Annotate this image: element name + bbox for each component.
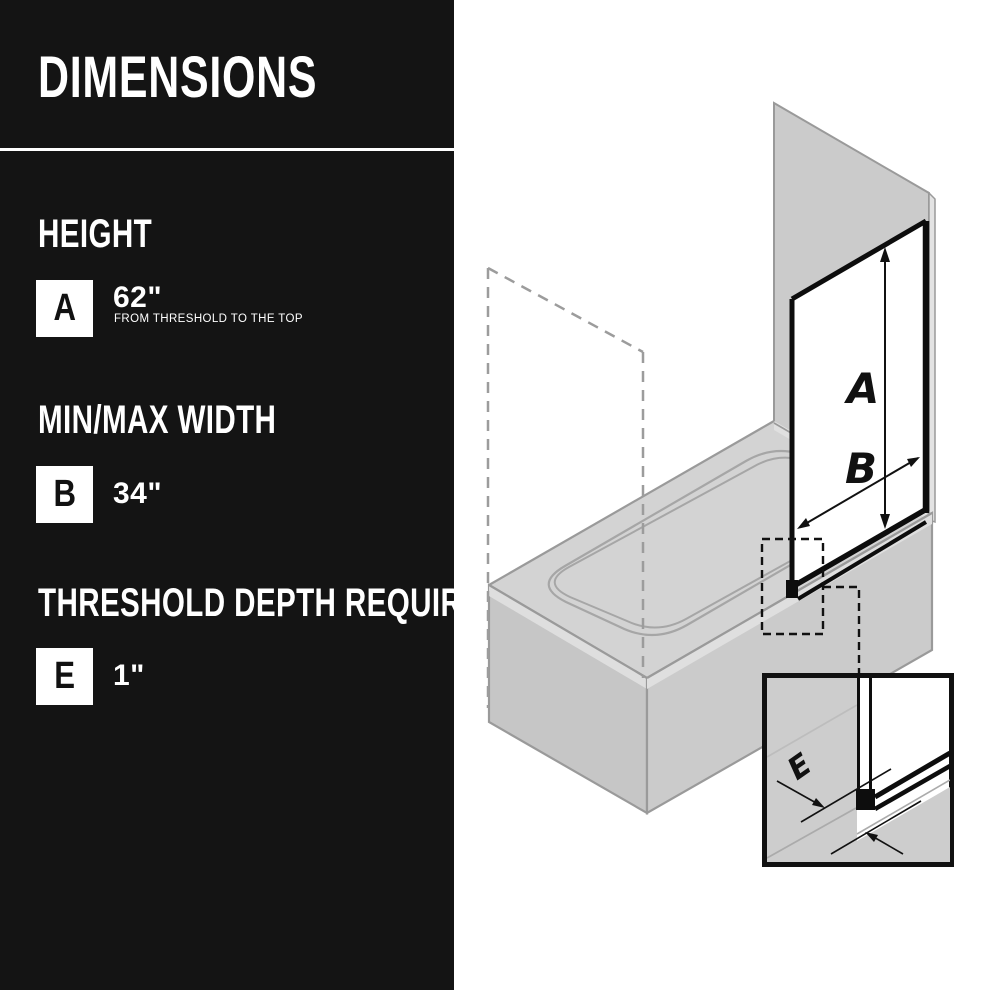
threshold-value: 1" xyxy=(113,659,145,693)
panel-foot xyxy=(786,580,798,598)
title-divider xyxy=(0,148,454,151)
inset-threshold-foot xyxy=(856,789,875,810)
height-value: 62" xyxy=(113,281,162,315)
isometric-drawing: A B xyxy=(454,0,990,990)
width-value: 34" xyxy=(113,477,162,511)
dimensions-sidebar: DIMENSIONS HEIGHT A 62" FROM THRESHOLD T… xyxy=(0,0,454,990)
badge-b-letter: B xyxy=(53,473,76,516)
page-title: DIMENSIONS xyxy=(38,44,317,111)
width-heading: MIN/MAX WIDTH xyxy=(38,398,276,443)
label-a: A xyxy=(844,364,880,413)
badge-a: A xyxy=(36,280,93,337)
threshold-inset-box: E xyxy=(765,676,952,865)
height-heading: HEIGHT xyxy=(38,212,152,257)
height-note: FROM THRESHOLD TO THE TOP xyxy=(114,313,303,325)
badge-e: E xyxy=(36,648,93,705)
badge-a-letter: A xyxy=(53,287,76,330)
label-b: B xyxy=(845,444,877,493)
threshold-heading: THRESHOLD DEPTH REQUIRED xyxy=(38,581,504,626)
bathtub-screen-diagram: A B xyxy=(454,0,990,990)
badge-e-letter: E xyxy=(54,655,75,698)
badge-b: B xyxy=(36,466,93,523)
